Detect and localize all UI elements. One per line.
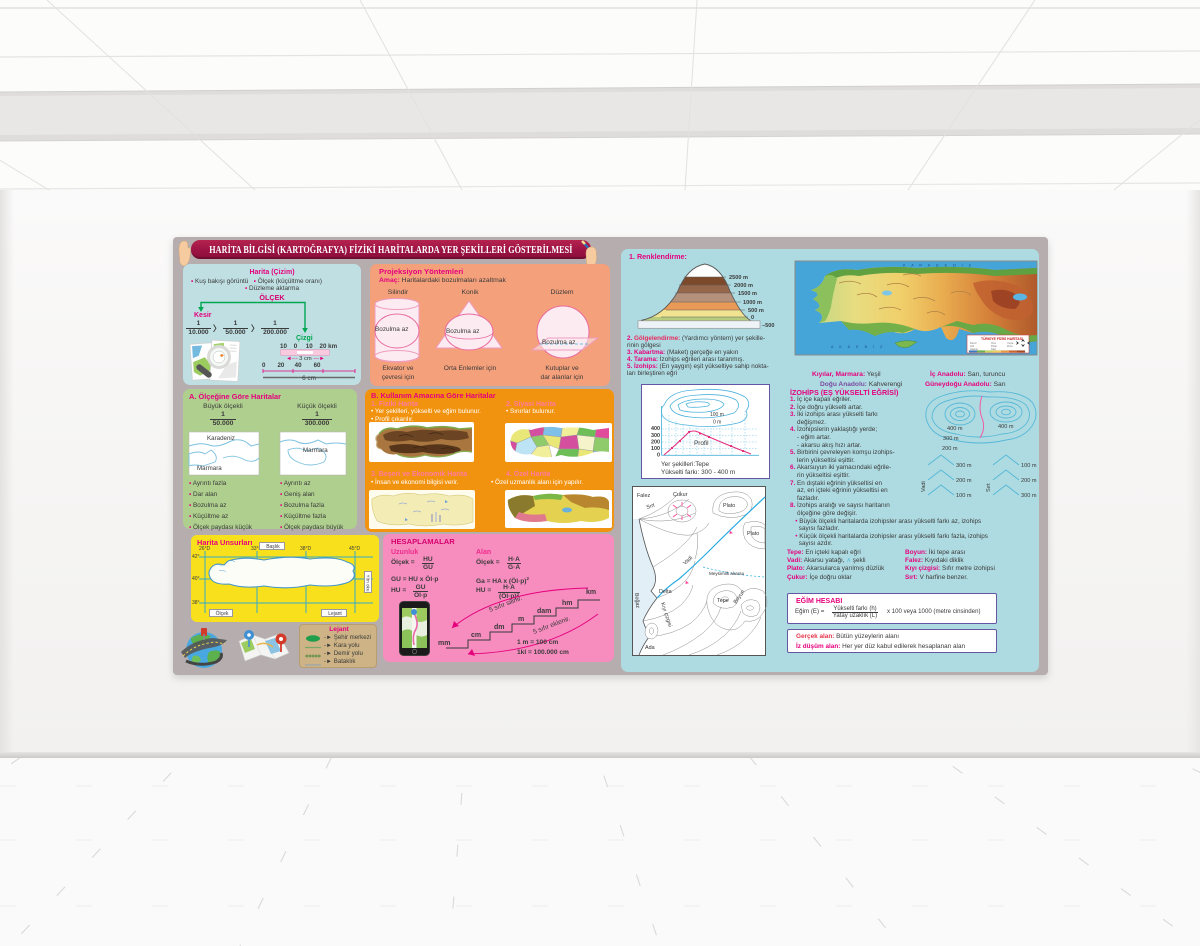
svg-text:0: 0 (751, 315, 754, 321)
svg-text:Delta: Delta (659, 589, 672, 595)
svg-text:2000 m: 2000 m (734, 283, 753, 289)
svg-text:2500 m: 2500 m (729, 275, 748, 281)
svg-text:200 m: 200 m (1021, 478, 1037, 484)
svg-text:400 m: 400 m (998, 424, 1014, 430)
svg-text:Sırt: Sırt (646, 502, 656, 510)
svg-text:1000 m: 1000 m (743, 300, 762, 306)
svg-text:Plato: Plato (747, 531, 759, 537)
svg-text:Çukur: Çukur (673, 492, 688, 498)
svg-text:Vadi: Vadi (921, 481, 927, 492)
svg-text:dm: dm (494, 624, 505, 631)
svg-text:Sırt: Sırt (986, 483, 992, 492)
svg-text:TÜRKİYE FİZİKİ HARİTASI: TÜRKİYE FİZİKİ HARİTASI (981, 336, 1023, 341)
svg-text:300 m: 300 m (943, 436, 959, 442)
svg-text:km: km (586, 589, 596, 596)
svg-text:cm: cm (471, 632, 481, 639)
svg-text:Ada: Ada (645, 645, 655, 651)
svg-text:500 m: 500 m (748, 308, 764, 314)
svg-text:5 sıfır silinir.: 5 sıfır silinir. (488, 595, 523, 614)
svg-text:A K D E N İ Z: A K D E N İ Z (831, 344, 885, 349)
svg-text:100: 100 (651, 446, 660, 452)
svg-text:Plato: Plato (723, 503, 735, 509)
svg-text:200: 200 (651, 440, 660, 446)
svg-text:1500 m: 1500 m (738, 291, 757, 297)
svg-text:Vadi: Vadi (682, 555, 694, 566)
svg-text:300 m: 300 m (956, 463, 972, 469)
svg-text:300 m: 300 m (1021, 493, 1037, 499)
svg-text:5 sıfır eklenir.: 5 sıfır eklenir. (532, 615, 571, 636)
svg-text:Kıyı çizgisi: Kıyı çizgisi (659, 602, 673, 628)
svg-text:100 m: 100 m (1021, 463, 1037, 469)
svg-text:200 m: 200 m (956, 478, 972, 484)
svg-text:300: 300 (651, 433, 660, 439)
svg-text:hm: hm (562, 600, 573, 607)
svg-text:Meysimlik akarsu: Meysimlik akarsu (709, 571, 745, 576)
svg-text:0 m: 0 m (713, 420, 721, 426)
svg-text:K A R A D E N İ Z: K A R A D E N İ Z (903, 263, 973, 268)
svg-text:mm: mm (438, 640, 450, 647)
svg-text:0: 0 (657, 453, 660, 459)
svg-text:Zirve: Zirve (1007, 344, 1013, 348)
svg-text:100 m: 100 m (956, 493, 972, 499)
svg-text:m: m (518, 616, 524, 623)
svg-text:–500: –500 (762, 323, 774, 329)
svg-text:Falez: Falez (637, 493, 650, 499)
svg-text:Boyun: Boyun (733, 589, 747, 605)
svg-text:Tepe: Tepe (717, 598, 729, 604)
svg-text:100 m: 100 m (710, 412, 724, 418)
svg-text:dam: dam (537, 608, 551, 615)
svg-text:400 m: 400 m (947, 426, 963, 432)
svg-text:400: 400 (651, 426, 660, 432)
svg-text:Profil: Profil (694, 440, 709, 447)
